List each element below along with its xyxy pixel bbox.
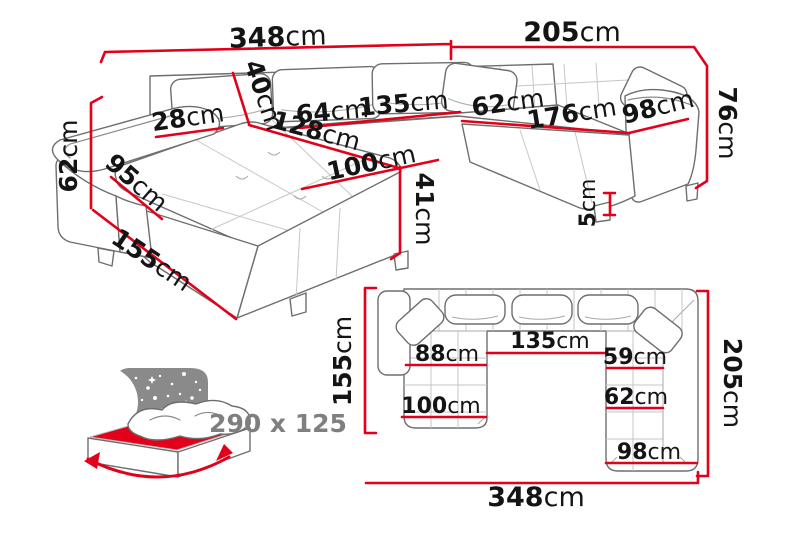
plan-label-100: 100cm <box>401 394 480 419</box>
plan-label-348: 348cm <box>487 482 585 513</box>
sleeping-area-size-label: 290 x 125 <box>209 409 347 438</box>
dim-label-348: 348cm <box>228 20 327 54</box>
plan-label-59: 59cm <box>603 345 667 370</box>
dim-label-41: 41cm <box>410 173 439 246</box>
sofa-dimensions-diagram: 348cm 205cm 76cm 62cm 155cm 95cm 28cm 40… <box>0 0 800 533</box>
dim-label-76: 76cm <box>713 87 742 160</box>
dim-label-205: 205cm <box>523 17 621 48</box>
bed-fold-out-icon: 290 x 125 <box>66 366 347 477</box>
plan-label-155: 155cm <box>328 316 357 406</box>
plan-label-135: 135cm <box>510 329 589 354</box>
dim-label-62-left: 62cm <box>54 120 83 193</box>
dim-label-5: 5cm <box>576 179 601 228</box>
plan-label-62: 62cm <box>604 385 668 410</box>
plan-label-205: 205cm <box>718 338 747 428</box>
plan-label-98: 98cm <box>617 440 681 465</box>
plan-dim-155 <box>365 288 376 433</box>
plan-view: 88cm 135cm 59cm 62cm 100cm 98cm 155cm 20… <box>328 288 747 513</box>
perspective-view: 348cm 205cm 76cm 62cm 155cm 95cm 28cm 40… <box>52 17 742 319</box>
dim-line-205 <box>452 47 707 66</box>
plan-label-88: 88cm <box>415 342 479 367</box>
